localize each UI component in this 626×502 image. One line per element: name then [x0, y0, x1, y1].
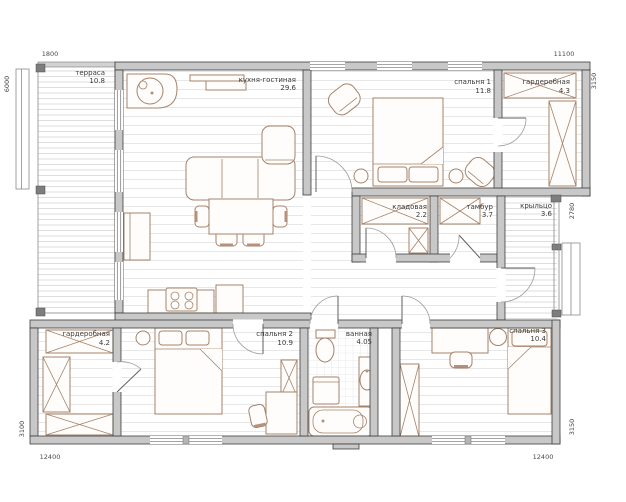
porch-step [562, 243, 580, 315]
toilet [316, 330, 335, 362]
room-label-terrace: терраса [75, 69, 105, 77]
dim-bottom-right: 12400 [533, 453, 554, 461]
room-label-bathroom: ванная [346, 330, 372, 338]
dresser [281, 360, 297, 396]
vestibule-closet [440, 198, 480, 224]
room-area-bathroom: 4.05 [356, 338, 372, 346]
cabinet [124, 213, 150, 260]
room-area-bedroom-2: 10.9 [277, 339, 293, 347]
room-area-vestibule: 3.7 [482, 211, 493, 219]
room-area-terrace: 10.8 [89, 77, 105, 85]
room-label-kitchen-living: кухня-гостиная [239, 76, 296, 84]
fireplace-stove [127, 74, 177, 108]
window [432, 436, 505, 444]
terrace-top-beam [38, 62, 115, 67]
room-area-bedroom-3: 10.4 [530, 335, 546, 343]
dim-right-lower: 3150 [568, 419, 576, 436]
terrace-deck [38, 68, 115, 313]
washing-machine [313, 377, 339, 404]
room-label-porch: крыльцо [520, 202, 552, 210]
bathtub [309, 407, 373, 436]
room-label-bedroom-3: спальня 3 [509, 327, 546, 335]
dim-right-middle: 2780 [568, 203, 576, 220]
room-area-porch: 3.6 [541, 210, 553, 218]
dim-left-upper: 6000 [3, 76, 11, 93]
window [115, 212, 123, 252]
room-label-bedroom-1: спальня 1 [454, 78, 491, 86]
dim-top-right: 11100 [554, 50, 575, 58]
room-label-bedroom-2: спальня 2 [256, 330, 293, 338]
window [448, 62, 482, 70]
room-area-bedroom-1: 11.8 [475, 87, 491, 95]
room-label-vestibule: тамбур [466, 203, 493, 211]
window [115, 150, 123, 192]
window [377, 62, 412, 70]
window [150, 436, 222, 444]
room-label-wardrobe-2: гардеробная [62, 330, 110, 338]
window [115, 262, 123, 300]
room-label-storage: кладовая [392, 203, 427, 211]
dim-right-upper: 3150 [590, 73, 598, 90]
window [310, 62, 345, 70]
room-area-wardrobe-1: 4.3 [559, 87, 570, 95]
closet-3 [400, 364, 419, 437]
dim-left-lower: 3100 [18, 421, 26, 438]
shaft [378, 328, 392, 436]
dim-bottom-left: 12400 [40, 453, 61, 461]
floor-plan-canvas: терраса 10.8 кухня-гостиная 29.6 спальня… [0, 0, 626, 502]
room-label-wardrobe-1: гардеробная [522, 78, 570, 86]
window [115, 90, 123, 130]
dim-top-left: 1800 [42, 50, 59, 58]
room-area-kitchen-living: 29.6 [280, 84, 296, 92]
room-area-storage: 2.2 [416, 211, 427, 219]
floor-plan-drawing: терраса 10.8 кухня-гостиная 29.6 спальня… [0, 0, 626, 502]
room-area-wardrobe-2: 4.2 [99, 339, 110, 347]
